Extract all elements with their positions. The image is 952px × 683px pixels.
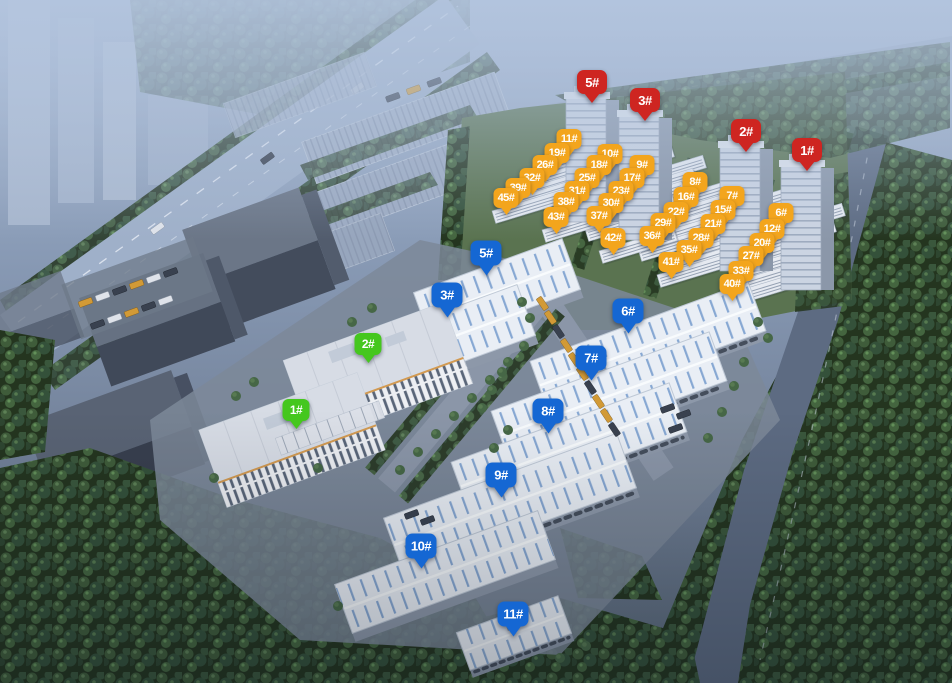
pin-townhouse-42[interactable]: 42#	[601, 228, 626, 248]
markers-layer: 5#3#2#1#11#10#9#8#7#6#19#18#17#16#15#12#…	[0, 0, 952, 683]
pin-highrise-5[interactable]: 5#	[577, 70, 607, 94]
pin-warehouse-9[interactable]: 9#	[486, 463, 517, 488]
pin-plant-1[interactable]: 1#	[283, 399, 310, 421]
pin-townhouse-41[interactable]: 41#	[659, 252, 684, 272]
pin-highrise-2[interactable]: 2#	[731, 119, 761, 143]
site-plan-canvas: 5#3#2#1#11#10#9#8#7#6#19#18#17#16#15#12#…	[0, 0, 952, 683]
pin-warehouse-5[interactable]: 5#	[471, 241, 502, 266]
pin-warehouse-8[interactable]: 8#	[533, 399, 564, 424]
pin-plant-2[interactable]: 2#	[355, 333, 382, 355]
pin-warehouse-11[interactable]: 11#	[498, 602, 529, 627]
pin-highrise-1[interactable]: 1#	[792, 138, 822, 162]
pin-townhouse-43[interactable]: 43#	[544, 207, 569, 227]
pin-warehouse-3[interactable]: 3#	[432, 283, 463, 308]
pin-townhouse-37[interactable]: 37#	[587, 206, 612, 226]
pin-townhouse-36[interactable]: 36#	[640, 226, 665, 246]
pin-warehouse-7[interactable]: 7#	[576, 346, 607, 371]
pin-warehouse-10[interactable]: 10#	[406, 534, 437, 559]
pin-townhouse-40[interactable]: 40#	[720, 274, 745, 294]
pin-highrise-3[interactable]: 3#	[630, 88, 660, 112]
pin-warehouse-6[interactable]: 6#	[613, 299, 644, 324]
pin-townhouse-45[interactable]: 45#	[494, 188, 519, 208]
